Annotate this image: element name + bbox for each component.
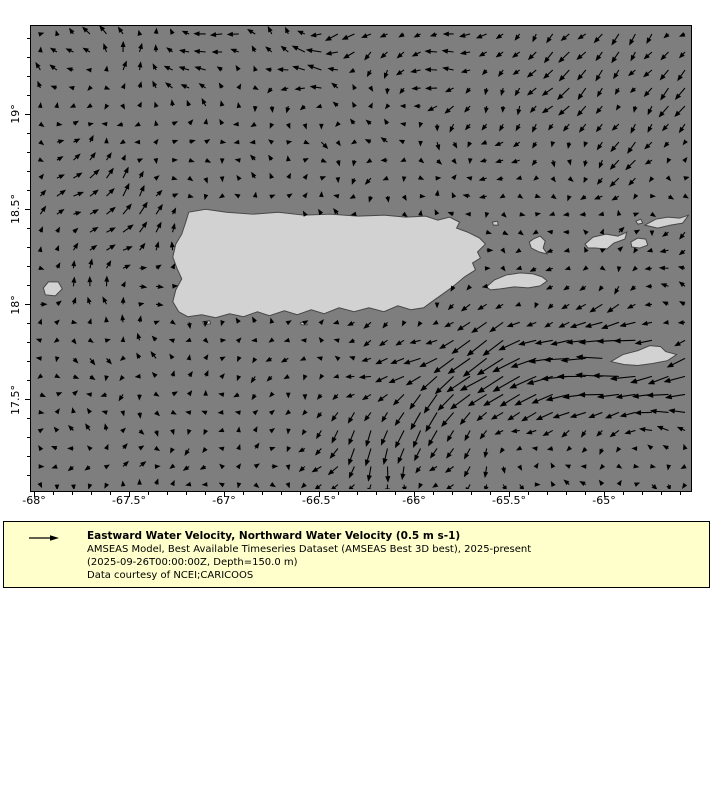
velocity-arrow bbox=[533, 34, 536, 41]
velocity-arrow bbox=[584, 266, 588, 269]
velocity-arrow bbox=[419, 159, 423, 163]
velocity-arrow bbox=[568, 160, 571, 164]
velocity-arrow bbox=[419, 176, 423, 179]
velocity-arrow bbox=[646, 267, 652, 270]
velocity-arrow bbox=[270, 123, 273, 127]
velocity-arrow bbox=[51, 48, 57, 52]
velocity-arrow bbox=[600, 481, 604, 485]
velocity-arrow bbox=[121, 356, 125, 360]
velocity-arrow bbox=[678, 70, 685, 80]
velocity-arrow bbox=[497, 34, 503, 38]
velocity-arrow bbox=[167, 48, 172, 52]
velocity-arrow bbox=[545, 52, 553, 62]
velocity-arrow bbox=[238, 483, 241, 487]
velocity-arrow bbox=[170, 355, 173, 359]
velocity-arrow bbox=[89, 123, 93, 126]
velocity-arrow bbox=[105, 465, 109, 468]
velocity-arrow bbox=[680, 250, 685, 254]
velocity-arrow bbox=[105, 277, 108, 286]
velocity-arrow bbox=[402, 158, 406, 161]
velocity-arrow bbox=[270, 393, 274, 397]
velocity-arrow bbox=[140, 186, 144, 196]
velocity-arrow bbox=[138, 63, 141, 70]
velocity-arrow bbox=[617, 447, 620, 451]
velocity-arrow bbox=[333, 394, 337, 399]
velocity-arrow bbox=[683, 484, 686, 488]
velocity-arrow bbox=[308, 65, 321, 70]
velocity-arrow bbox=[118, 123, 123, 126]
velocity-arrow bbox=[599, 212, 603, 215]
velocity-arrow bbox=[154, 159, 157, 163]
velocity-arrow bbox=[566, 465, 570, 468]
velocity-arrow bbox=[469, 394, 487, 405]
velocity-arrow bbox=[287, 157, 290, 161]
velocity-arrow bbox=[205, 371, 208, 376]
velocity-arrow bbox=[183, 31, 189, 34]
velocity-arrow bbox=[528, 88, 536, 95]
land-puerto-rico bbox=[173, 209, 486, 318]
velocity-arrow bbox=[329, 68, 338, 71]
velocity-arrow bbox=[364, 322, 370, 328]
velocity-arrow bbox=[383, 322, 387, 327]
velocity-arrow bbox=[447, 448, 454, 457]
velocity-arrow bbox=[430, 466, 437, 470]
velocity-arrow bbox=[180, 49, 189, 52]
velocity-arrow bbox=[334, 102, 338, 106]
velocity-arrow bbox=[171, 264, 174, 268]
velocity-arrow bbox=[396, 412, 404, 424]
velocity-arrow bbox=[203, 483, 207, 486]
velocity-arrow bbox=[90, 246, 96, 250]
velocity-arrow bbox=[401, 123, 405, 126]
velocity-arrow bbox=[298, 31, 304, 34]
velocity-arrow bbox=[70, 29, 74, 34]
velocity-arrow bbox=[453, 142, 456, 147]
velocity-arrow bbox=[611, 178, 619, 186]
velocity-arrow bbox=[631, 376, 652, 383]
velocity-arrow bbox=[560, 322, 570, 327]
velocity-arrow bbox=[84, 48, 90, 52]
velocity-arrow bbox=[136, 123, 140, 126]
velocity-arrow bbox=[349, 430, 354, 443]
velocity-arrow bbox=[599, 160, 602, 167]
velocity-arrow bbox=[599, 286, 602, 290]
velocity-arrow bbox=[270, 195, 274, 198]
x-tick-label: -68° bbox=[0, 494, 69, 507]
velocity-arrow bbox=[140, 462, 146, 466]
velocity-arrow bbox=[286, 106, 289, 112]
velocity-arrow bbox=[571, 412, 586, 417]
velocity-arrow bbox=[123, 225, 133, 232]
velocity-arrow bbox=[631, 52, 635, 60]
velocity-arrow bbox=[483, 70, 487, 74]
velocity-arrow bbox=[57, 301, 61, 305]
velocity-arrow bbox=[606, 412, 619, 417]
velocity-arrow bbox=[220, 465, 224, 469]
velocity-arrow bbox=[581, 286, 586, 290]
velocity-arrow bbox=[577, 304, 586, 309]
velocity-arrow bbox=[452, 175, 456, 179]
velocity-arrow bbox=[88, 278, 91, 287]
velocity-arrow bbox=[173, 122, 177, 125]
velocity-arrow bbox=[412, 69, 421, 72]
velocity-arrow bbox=[498, 177, 504, 180]
velocity-arrow bbox=[590, 412, 603, 417]
velocity-arrow bbox=[536, 213, 540, 216]
velocity-arrow bbox=[367, 159, 371, 162]
velocity-arrow bbox=[252, 394, 255, 398]
velocity-arrow bbox=[316, 448, 321, 454]
velocity-arrow bbox=[663, 232, 668, 236]
velocity-arrow bbox=[326, 34, 338, 40]
velocity-arrow bbox=[154, 321, 158, 324]
velocity-arrow bbox=[318, 394, 322, 398]
velocity-arrow bbox=[666, 394, 685, 398]
velocity-arrow bbox=[252, 123, 256, 126]
velocity-arrow bbox=[548, 447, 552, 450]
velocity-arrow bbox=[503, 231, 507, 234]
velocity-arrow bbox=[184, 466, 189, 470]
velocity-arrow bbox=[137, 334, 140, 340]
velocity-arrow bbox=[72, 262, 75, 269]
y-minor-tick bbox=[27, 342, 30, 343]
velocity-arrow bbox=[584, 160, 587, 166]
velocity-arrow bbox=[155, 447, 159, 450]
velocity-arrow bbox=[236, 319, 239, 323]
velocity-arrow bbox=[486, 231, 490, 234]
velocity-arrow bbox=[72, 321, 76, 324]
velocity-arrow bbox=[648, 106, 652, 114]
velocity-arrow bbox=[171, 243, 174, 251]
velocity-arrow bbox=[419, 211, 422, 215]
velocity-arrow bbox=[294, 66, 305, 70]
velocity-arrow bbox=[220, 194, 224, 197]
velocity-arrow bbox=[237, 464, 240, 468]
velocity-arrow bbox=[478, 304, 486, 309]
velocity-arrow bbox=[667, 465, 670, 469]
velocity-arrow bbox=[39, 158, 43, 161]
velocity-arrow bbox=[413, 87, 421, 90]
velocity-arrow bbox=[303, 430, 306, 434]
velocity-arrow bbox=[503, 485, 506, 489]
velocity-arrow bbox=[90, 136, 93, 142]
land-culebra bbox=[529, 236, 547, 254]
velocity-arrow bbox=[270, 106, 273, 111]
velocity-arrow bbox=[400, 88, 404, 93]
velocity-arrow bbox=[55, 321, 59, 325]
velocity-arrow bbox=[460, 34, 470, 37]
velocity-arrow bbox=[73, 358, 77, 362]
velocity-arrow bbox=[612, 34, 619, 44]
velocity-arrow bbox=[502, 466, 505, 472]
velocity-arrow bbox=[353, 160, 356, 165]
x-minor-tick bbox=[186, 492, 187, 495]
velocity-arrow bbox=[536, 195, 540, 198]
velocity-arrow bbox=[636, 340, 652, 344]
land-fajardo-islet bbox=[492, 221, 498, 225]
velocity-arrow bbox=[187, 101, 190, 106]
velocity-arrow bbox=[577, 355, 602, 359]
velocity-arrow bbox=[220, 120, 223, 124]
velocity-arrow bbox=[368, 466, 371, 480]
velocity-arrow bbox=[293, 46, 305, 52]
velocity-arrow bbox=[626, 160, 635, 169]
velocity-arrow bbox=[337, 141, 340, 145]
velocity-arrow bbox=[39, 123, 43, 126]
velocity-arrow bbox=[155, 480, 158, 485]
velocity-arrow bbox=[645, 142, 652, 148]
velocity-arrow bbox=[287, 393, 290, 397]
velocity-arrow bbox=[429, 430, 437, 445]
legend-subtitle-3: Data courtesy of NCEI;CARICOOS bbox=[87, 569, 531, 582]
velocity-arrow bbox=[119, 28, 123, 34]
velocity-arrow bbox=[517, 106, 520, 114]
velocity-arrow bbox=[481, 430, 487, 438]
velocity-arrow bbox=[676, 340, 685, 345]
velocity-arrow bbox=[448, 430, 454, 440]
velocity-arrow bbox=[501, 194, 505, 197]
velocity-arrow bbox=[617, 465, 621, 468]
velocity-arrow bbox=[237, 445, 240, 449]
velocity-arrow bbox=[329, 466, 338, 474]
velocity-arrow bbox=[270, 447, 274, 450]
velocity-arrow bbox=[431, 448, 437, 457]
land-st-thomas bbox=[585, 232, 627, 249]
velocity-arrow bbox=[317, 412, 321, 417]
velocity-arrow bbox=[397, 70, 404, 75]
velocity-arrow bbox=[449, 212, 454, 215]
velocity-arrow bbox=[182, 85, 189, 88]
velocity-arrow bbox=[270, 429, 274, 432]
y-major-tick bbox=[25, 304, 30, 305]
velocity-arrow bbox=[187, 339, 191, 342]
velocity-arrow bbox=[533, 124, 537, 131]
velocity-arrow bbox=[304, 141, 308, 144]
velocity-arrow bbox=[543, 106, 553, 112]
velocity-arrow bbox=[559, 106, 569, 115]
velocity-arrow bbox=[484, 448, 487, 456]
velocity-arrow bbox=[633, 267, 637, 271]
velocity-arrow bbox=[465, 106, 470, 111]
velocity-arrow bbox=[537, 412, 553, 419]
velocity-arrow bbox=[583, 448, 587, 452]
velocity-arrow bbox=[122, 84, 125, 88]
velocity-arrow bbox=[468, 340, 487, 355]
velocity-arrow bbox=[384, 177, 388, 180]
velocity-arrow bbox=[320, 124, 323, 128]
velocity-arrow bbox=[251, 156, 255, 160]
velocity-arrow bbox=[362, 34, 371, 37]
velocity-arrow bbox=[485, 88, 488, 94]
velocity-arrow bbox=[534, 231, 538, 234]
velocity-arrow bbox=[618, 481, 621, 485]
velocity-arrow bbox=[564, 231, 569, 234]
velocity-arrow bbox=[500, 124, 503, 130]
velocity-arrow bbox=[611, 160, 619, 169]
velocity-arrow bbox=[319, 320, 322, 324]
velocity-arrow bbox=[252, 47, 255, 52]
velocity-arrow bbox=[551, 482, 554, 486]
velocity-arrow bbox=[172, 177, 176, 180]
velocity-arrow bbox=[612, 52, 619, 62]
velocity-arrow bbox=[436, 191, 439, 196]
velocity-arrow bbox=[502, 213, 506, 217]
velocity-arrow bbox=[337, 160, 340, 165]
velocity-arrow bbox=[631, 124, 635, 132]
velocity-arrow bbox=[658, 426, 668, 430]
velocity-arrow bbox=[204, 120, 207, 124]
land-tortola bbox=[645, 215, 689, 228]
velocity-arrow bbox=[535, 483, 539, 486]
velocity-arrow bbox=[220, 393, 224, 396]
velocity-arrow bbox=[602, 322, 618, 328]
velocity-arrow bbox=[631, 88, 635, 92]
velocity-arrow bbox=[155, 430, 158, 435]
velocity-arrow bbox=[366, 140, 371, 143]
x-minor-tick bbox=[91, 492, 92, 495]
velocity-arrow bbox=[562, 34, 570, 40]
x-tick-label: -65° bbox=[569, 494, 639, 507]
legend-title: Eastward Water Velocity, Northward Water… bbox=[87, 529, 531, 543]
velocity-arrow bbox=[282, 47, 289, 52]
velocity-arrow bbox=[597, 106, 603, 113]
velocity-arrow bbox=[421, 376, 437, 390]
velocity-arrow bbox=[386, 104, 389, 108]
velocity-arrow bbox=[536, 340, 553, 344]
velocity-arrow bbox=[512, 160, 519, 163]
velocity-arrow bbox=[57, 157, 62, 160]
velocity-arrow bbox=[56, 228, 59, 232]
velocity-arrow bbox=[88, 320, 91, 324]
velocity-arrow bbox=[508, 412, 519, 419]
velocity-arrow bbox=[480, 52, 487, 56]
velocity-arrow bbox=[88, 409, 91, 413]
velocity-arrow bbox=[282, 87, 288, 90]
velocity-arrow bbox=[665, 142, 669, 146]
velocity-arrow bbox=[517, 266, 521, 269]
velocity-arrow bbox=[140, 203, 147, 214]
velocity-arrow bbox=[336, 357, 340, 361]
velocity-arrow bbox=[123, 184, 129, 196]
velocity-arrow bbox=[548, 249, 553, 252]
velocity-arrow bbox=[173, 140, 177, 143]
velocity-arrow bbox=[496, 430, 503, 434]
velocity-arrow bbox=[38, 483, 41, 487]
velocity-arrow bbox=[106, 189, 113, 196]
y-minor-tick bbox=[27, 247, 30, 248]
velocity-arrow bbox=[90, 153, 95, 160]
velocity-arrow bbox=[121, 140, 125, 143]
velocity-arrow bbox=[253, 339, 257, 342]
velocity-arrow bbox=[478, 358, 503, 374]
velocity-arrow bbox=[220, 374, 224, 378]
velocity-arrow bbox=[615, 339, 635, 343]
velocity-arrow bbox=[286, 411, 290, 415]
velocity-arrow bbox=[613, 124, 619, 130]
x-minor-tick bbox=[452, 492, 453, 495]
velocity-arrow bbox=[171, 320, 175, 323]
velocity-arrow bbox=[187, 411, 191, 414]
velocity-arrow bbox=[206, 159, 210, 162]
velocity-arrow bbox=[683, 158, 686, 162]
velocity-arrow bbox=[170, 339, 174, 342]
velocity-arrow bbox=[39, 267, 43, 270]
velocity-arrow bbox=[57, 123, 61, 126]
velocity-arrow bbox=[419, 123, 422, 127]
velocity-arrow bbox=[57, 175, 64, 178]
velocity-arrow bbox=[202, 99, 205, 106]
velocity-arrow bbox=[581, 482, 586, 485]
velocity-arrow bbox=[529, 52, 536, 59]
velocity-arrow bbox=[73, 375, 77, 378]
velocity-arrow bbox=[517, 176, 521, 179]
velocity-arrow bbox=[195, 32, 206, 35]
velocity-arrow bbox=[586, 322, 602, 327]
velocity-arrow bbox=[381, 34, 387, 37]
velocity-arrow bbox=[317, 105, 321, 108]
velocity-arrow bbox=[155, 411, 159, 415]
velocity-arrow bbox=[140, 285, 146, 288]
velocity-arrow bbox=[234, 394, 238, 397]
velocity-arrow bbox=[200, 84, 206, 88]
velocity-arrow bbox=[234, 123, 238, 126]
velocity-arrow bbox=[57, 140, 63, 143]
velocity-arrow bbox=[307, 49, 321, 52]
velocity-arrow bbox=[106, 169, 112, 178]
velocity-arrow bbox=[187, 483, 191, 486]
land-st-john bbox=[631, 238, 648, 248]
velocity-arrow bbox=[426, 68, 437, 71]
velocity-arrow bbox=[73, 192, 82, 196]
velocity-arrow bbox=[597, 124, 603, 131]
velocity-arrow bbox=[105, 339, 109, 342]
velocity-arrow bbox=[56, 31, 59, 35]
velocity-arrow bbox=[39, 103, 42, 107]
velocity-arrow bbox=[120, 376, 124, 380]
velocity-arrow bbox=[527, 430, 536, 433]
velocity-arrow bbox=[647, 34, 652, 43]
velocity-arrow bbox=[171, 481, 174, 485]
velocity-arrow bbox=[452, 159, 455, 163]
velocity-arrow bbox=[73, 139, 79, 142]
velocity-arrow bbox=[465, 466, 471, 476]
velocity-arrow bbox=[335, 195, 339, 198]
velocity-arrow bbox=[635, 483, 639, 486]
velocity-arrow bbox=[446, 322, 454, 326]
velocity-arrow bbox=[267, 358, 272, 361]
velocity-arrow bbox=[204, 178, 207, 182]
velocity-arrow bbox=[466, 485, 470, 489]
velocity-arrow bbox=[629, 70, 635, 75]
velocity-arrow bbox=[86, 424, 90, 430]
y-minor-tick bbox=[27, 380, 30, 381]
velocity-arrow bbox=[236, 159, 240, 162]
y-tick-label: 18° bbox=[9, 275, 23, 335]
velocity-arrow bbox=[285, 375, 289, 378]
velocity-arrow bbox=[153, 65, 156, 70]
velocity-arrow bbox=[100, 26, 106, 34]
velocity-arrow bbox=[89, 339, 93, 342]
velocity-arrow bbox=[73, 229, 77, 233]
velocity-arrow bbox=[496, 142, 503, 145]
map-plot-area bbox=[30, 25, 692, 492]
velocity-arrow bbox=[122, 482, 125, 486]
x-minor-tick bbox=[680, 492, 681, 495]
velocity-arrow bbox=[496, 304, 503, 308]
velocity-arrow bbox=[419, 141, 422, 145]
velocity-arrow bbox=[386, 485, 389, 489]
velocity-arrow bbox=[51, 65, 57, 70]
